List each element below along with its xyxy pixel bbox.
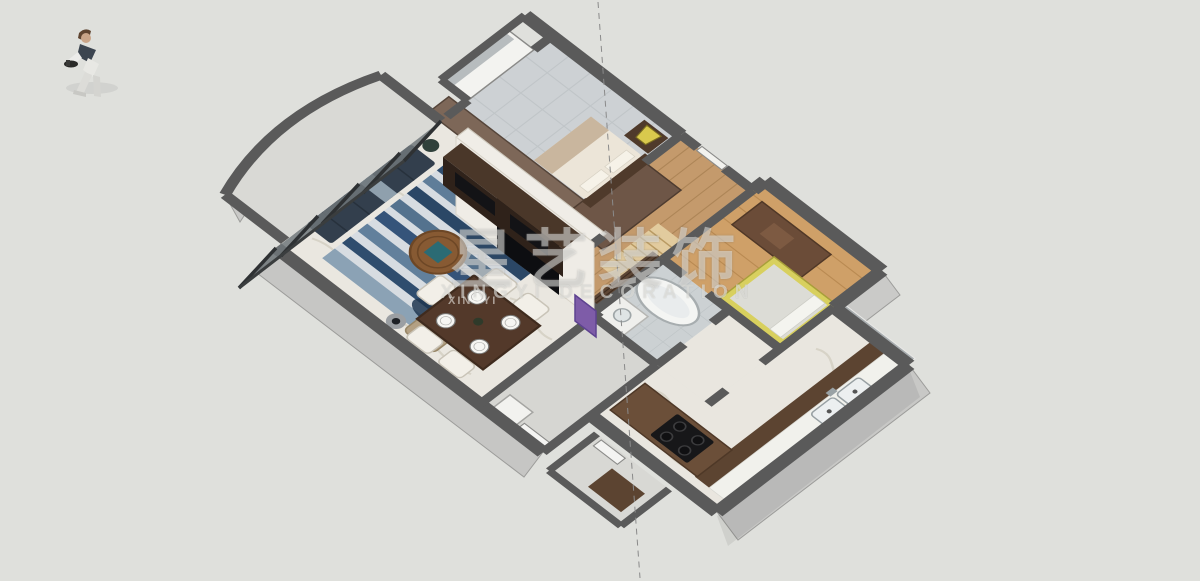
viewport-3d[interactable]: 星艺装饰 XINGYI DECORATION XINGYI xyxy=(0,0,1200,581)
person-figure xyxy=(64,29,118,97)
floorplan-canvas[interactable] xyxy=(0,0,1200,581)
